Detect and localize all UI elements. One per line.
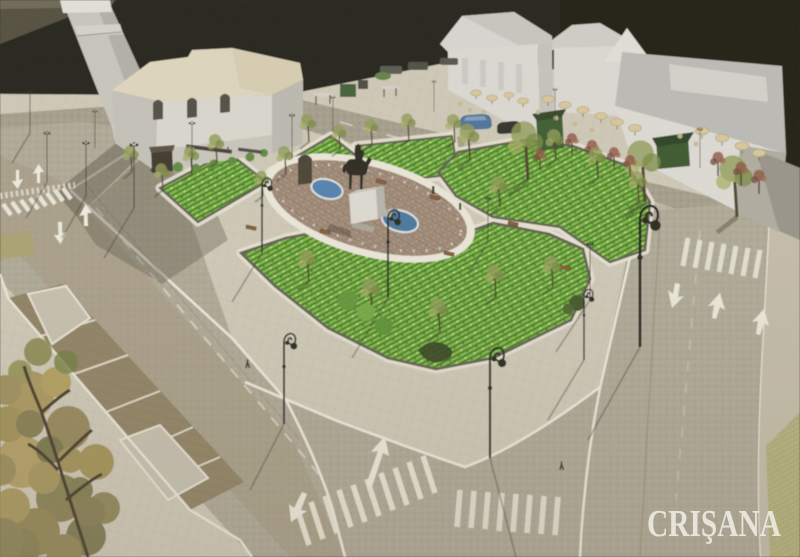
svg-text:CRIŞANA: CRIŞANA xyxy=(647,503,781,545)
